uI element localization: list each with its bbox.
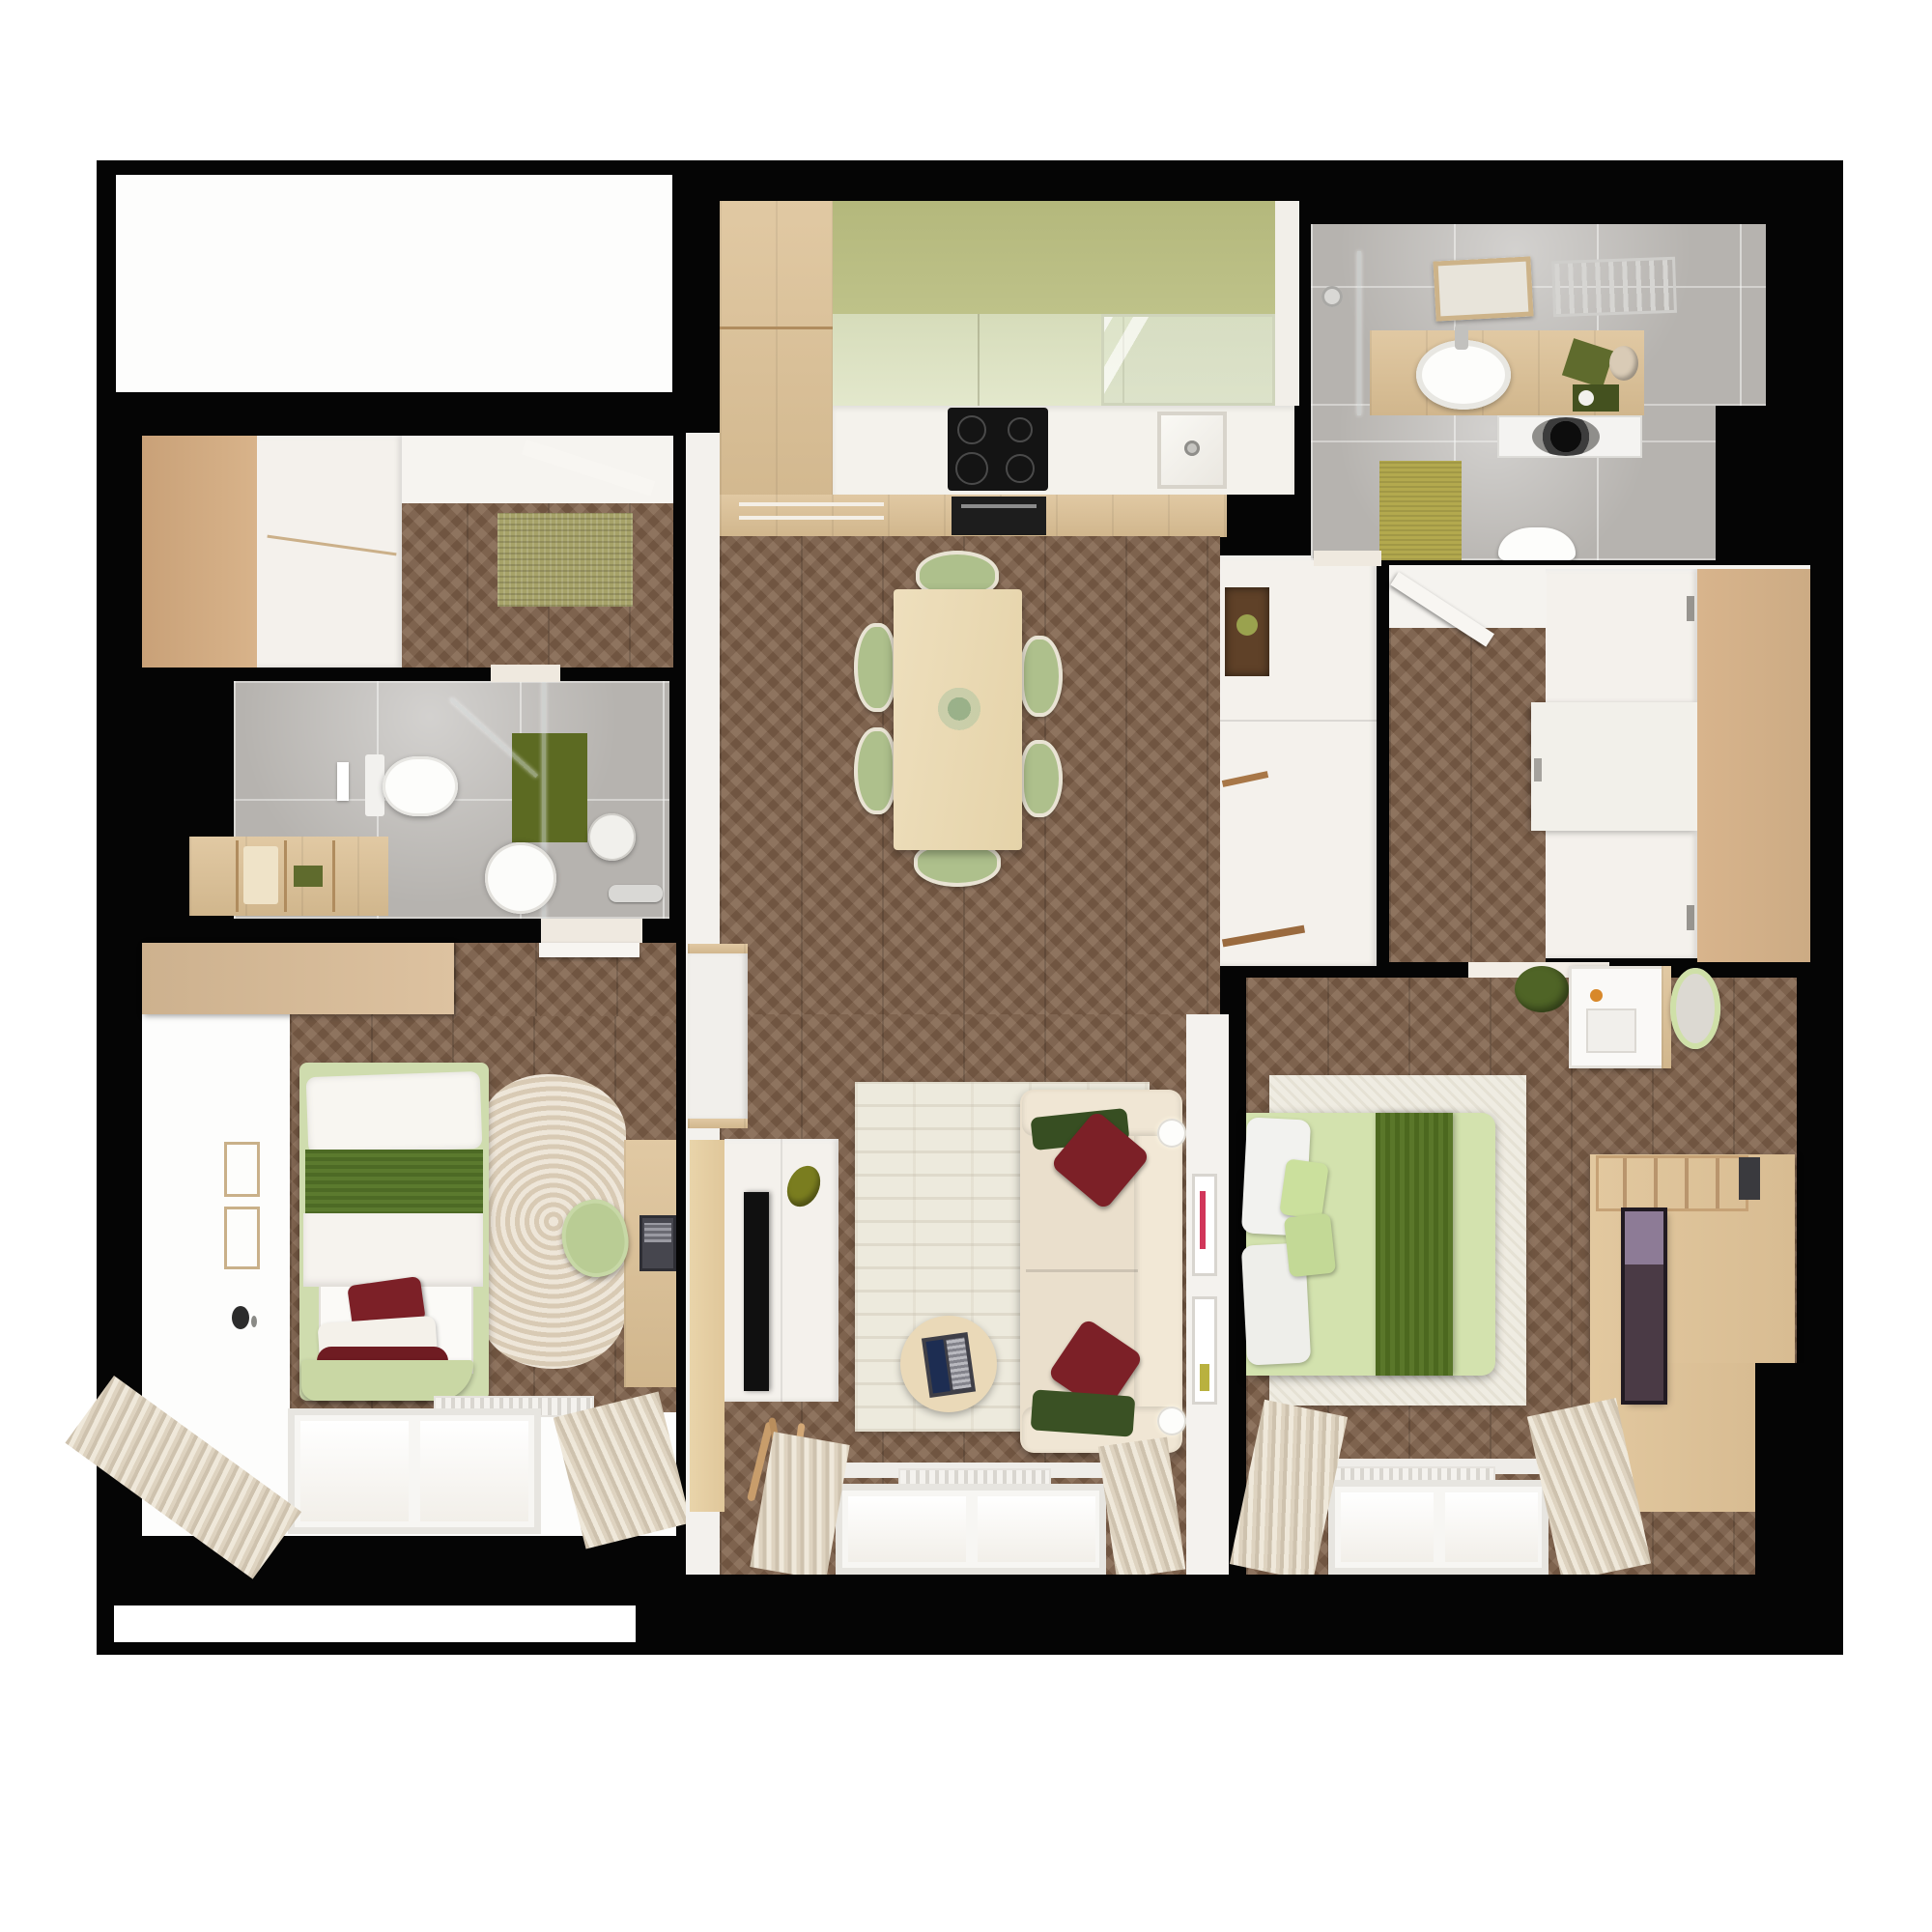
orange-cup: [1590, 989, 1603, 1002]
wardrobe-seam: [267, 535, 396, 556]
walkin-closet-floor: [1389, 628, 1546, 962]
closet-wardrobe-doors: [257, 436, 402, 668]
picture-frame: [224, 1142, 260, 1197]
closet-wardrobe-top: [142, 436, 257, 668]
shelf-divider: [332, 840, 335, 912]
sofa-seat-seam: [1026, 1269, 1138, 1272]
wardrobe-door-middle: [1531, 702, 1697, 831]
console-cap: [688, 1119, 748, 1128]
picture-frame: [224, 1207, 260, 1269]
console-cap: [688, 944, 748, 953]
shelf-divider: [284, 840, 287, 912]
tray-soap: [1578, 390, 1594, 406]
media-panel-books: [1739, 1157, 1760, 1200]
laptop-keyboard: [644, 1223, 671, 1242]
flush-plate: [337, 762, 349, 801]
wardrobe-handle: [1687, 596, 1694, 621]
shelf-divider: [236, 840, 239, 912]
kitchen-oven: [952, 497, 1046, 535]
bathroom-vase: [1609, 346, 1638, 381]
dining-radiator-console: [688, 952, 748, 1121]
shower-head: [1321, 286, 1343, 307]
cabinet-seam: [1220, 720, 1377, 722]
bathroom-main-door-gap: [1314, 551, 1381, 566]
kitchen-sink: [1157, 412, 1227, 489]
dining-chair-left: [854, 727, 896, 814]
kitchen-glass-cabinet: [1101, 314, 1275, 406]
wardrobe-handle: [1687, 905, 1694, 930]
kids-door-gap: [541, 919, 642, 943]
vanity-faucet: [1455, 325, 1468, 350]
sideboard-niche: [1225, 587, 1269, 676]
living-frame-art: [1192, 1296, 1217, 1405]
toilet-tank: [365, 754, 384, 816]
master-window: [1328, 1480, 1548, 1575]
window-pane: [978, 1496, 1095, 1562]
hall-sideboard: [1220, 555, 1377, 966]
kids-bed-duvet: [303, 1213, 483, 1287]
laptop-keyboard: [946, 1337, 971, 1389]
bathroom-main-rug: [1379, 461, 1462, 560]
master-bed-runner: [1376, 1113, 1453, 1376]
dining-table: [894, 589, 1022, 850]
window-pane: [300, 1421, 409, 1521]
towel-rail-chrome: [609, 885, 663, 902]
shelf-olive-box: [294, 866, 323, 887]
dining-chair-right: [1020, 740, 1063, 817]
living-laptop: [922, 1332, 976, 1398]
terrace-slab: [114, 1605, 636, 1642]
dressing-table: [1569, 966, 1666, 1068]
green-bowl: [1236, 614, 1258, 636]
oven-handle: [961, 504, 1037, 508]
sliding-wardrobe: [1546, 569, 1697, 958]
living-right-wall: [1186, 1014, 1229, 1575]
shelf-towel: [243, 846, 278, 904]
master-round-mirror: [1670, 968, 1720, 1049]
kids-bed-bench: [301, 1360, 473, 1401]
dining-chair-left: [854, 623, 896, 712]
main-mirror: [1433, 256, 1533, 321]
olive-accent-panel: [512, 733, 587, 842]
wall-lamp: [232, 1306, 249, 1329]
kids-laptop: [639, 1215, 676, 1271]
wardrobe-handle: [1534, 758, 1542, 781]
dining-chair-right: [1020, 636, 1063, 717]
faucet: [1184, 440, 1200, 456]
kitchen-upper-cabinets-olive: [833, 201, 1275, 314]
green-pillow: [1031, 1389, 1136, 1436]
wood-handle: [1222, 925, 1305, 948]
induction-hob: [948, 408, 1048, 491]
green-tray: [1573, 384, 1619, 412]
media-panel-shelf: [1596, 1155, 1748, 1211]
shower-tray: [485, 842, 556, 914]
window-pane: [848, 1496, 966, 1562]
kids-door-leaf: [539, 943, 639, 957]
towel-radiator: [1551, 257, 1677, 317]
washing-machine: [1497, 415, 1642, 458]
wood-handle: [1222, 771, 1268, 787]
window-pane: [1445, 1492, 1538, 1562]
art-accent: [1200, 1191, 1206, 1249]
burner: [1006, 454, 1035, 483]
cabinet-seam: [720, 327, 833, 329]
washer-drum: [1532, 417, 1600, 456]
handle-line: [739, 516, 884, 520]
art-accent: [1200, 1364, 1209, 1391]
media-panel-frame: [1625, 1211, 1663, 1401]
woven-rug: [497, 513, 633, 607]
burner: [1008, 417, 1033, 442]
master-cushion-green: [1279, 1158, 1329, 1220]
kitchen-tall-cabinet: [720, 201, 833, 536]
kids-bed-green-blanket: [305, 1150, 483, 1215]
master-cushion-green: [1284, 1213, 1336, 1278]
dressing-stool: [1515, 966, 1569, 1012]
dressing-drawer: [1586, 1009, 1636, 1053]
bathroom-small-door-gap: [491, 665, 560, 682]
plant-centerpiece: [934, 681, 984, 743]
floor-plan: [0, 0, 1932, 1932]
cabinet-seam: [781, 1139, 782, 1402]
bathroom-shelf-unit: [189, 837, 388, 916]
window-pane: [420, 1421, 528, 1521]
round-mirror-lamp: [588, 813, 636, 861]
wall-strip: [1246, 1575, 1843, 1655]
living-frame-art: [1192, 1174, 1217, 1276]
window-pane: [1341, 1492, 1434, 1562]
sofa: [1020, 1090, 1182, 1453]
wall-strip: [720, 1575, 1246, 1655]
walkin-closet-wall-top: [1697, 569, 1810, 962]
kids-wardrobe-top: [142, 943, 454, 1014]
toilet-bowl: [383, 756, 458, 816]
handle-line: [739, 502, 884, 506]
wall-sconce: [1157, 1406, 1186, 1435]
dressing-table-edge: [1662, 966, 1671, 1068]
tv-back-panel: [690, 1140, 724, 1512]
main-shower-glass: [1357, 251, 1361, 415]
tv-cabinet: [724, 1139, 838, 1402]
vanity-sink: [1416, 340, 1511, 410]
kids-window: [288, 1408, 541, 1534]
cabinet-seam: [978, 314, 980, 406]
wall-sconce: [1157, 1119, 1186, 1148]
living-window: [836, 1484, 1106, 1575]
burner: [955, 452, 988, 485]
burner: [957, 415, 986, 444]
kitchen-end-panel: [1275, 201, 1299, 406]
utility-room: [116, 175, 672, 392]
kids-bed-pillow: [306, 1071, 483, 1154]
tv: [744, 1192, 769, 1391]
